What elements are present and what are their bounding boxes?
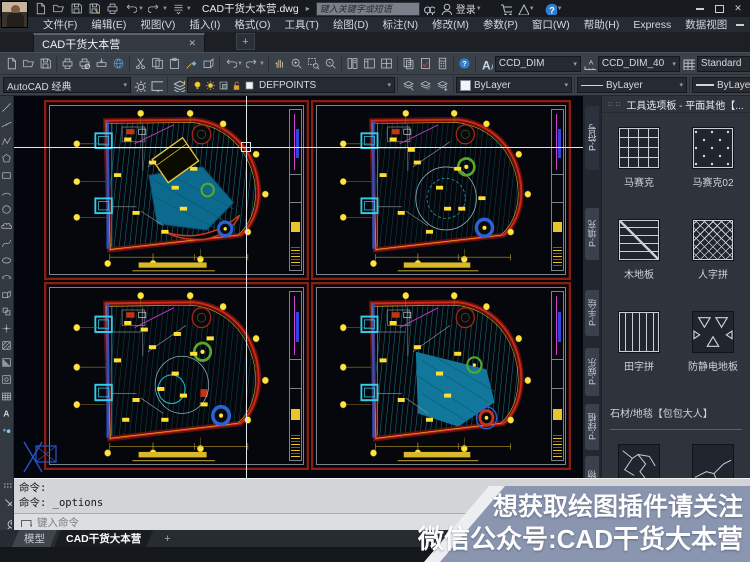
cart-icon[interactable] [497, 0, 514, 18]
toolpalettes-icon[interactable] [378, 55, 395, 73]
viewport-plan-pool[interactable] [50, 106, 287, 274]
menu-dataview[interactable]: 数据视图 [678, 17, 734, 32]
text-style-value: CCD_DIM [499, 58, 545, 69]
toolbar-separator [475, 56, 476, 72]
tool-palette-panel: ⁙⁙ 工具选项板 - 平面其他【... 马赛克马赛克02木地板人字拼田字拼防静电… [601, 96, 750, 478]
menu-express[interactable]: Express [626, 19, 678, 31]
zoom-win-icon[interactable] [305, 55, 322, 73]
menu-modify[interactable]: 修改(M) [425, 17, 476, 32]
palette-section-label: 石材/地毯【包包大人】 [610, 405, 744, 420]
main-area: P-符号 P-填充 P-手绘 P-娱乐 P-绿植 人物 ⁙⁙ 工具选项板 - 平… [0, 96, 750, 478]
layout-tab-bar: 模型 CAD干货大本营 + [0, 530, 750, 547]
add-layout-button[interactable]: + [156, 530, 178, 547]
bulb-icon[interactable] [191, 77, 204, 93]
viewport-plan-detail[interactable] [50, 288, 287, 464]
toolbar-separator [56, 56, 57, 72]
undo-icon[interactable] [122, 0, 139, 18]
help-icon[interactable] [456, 55, 473, 73]
command-line-icon [18, 516, 33, 529]
save-icon[interactable] [37, 55, 54, 73]
insert-block-icon[interactable] [1, 287, 13, 301]
workspace-value: AutoCAD 经典 [7, 78, 71, 93]
command-history[interactable]: 命令: 命令: _options [14, 478, 750, 513]
palette-side-tab-symbols[interactable]: P-符号 [585, 106, 599, 170]
palette-item[interactable]: 马赛克 [602, 127, 676, 189]
locktrans-icon[interactable] [217, 77, 230, 93]
toolbar-separator [341, 56, 342, 72]
line-icon[interactable] [1, 100, 13, 114]
palette-item-label: 马赛克 [624, 174, 654, 189]
polygon-icon[interactable] [1, 151, 13, 165]
save-as-icon[interactable] [86, 0, 103, 18]
tab-layout-active[interactable]: CAD干货大本营 [54, 530, 153, 547]
sheet-title-strip [289, 109, 302, 271]
arc-icon[interactable] [1, 185, 13, 199]
toolbar-separator [219, 56, 220, 72]
linetype-combo[interactable]: ByLayer▾ [577, 77, 687, 93]
menu-parametric[interactable]: 参数(P) [476, 17, 525, 32]
swatch-vlines-icon[interactable] [618, 311, 660, 353]
redo-icon[interactable] [146, 0, 163, 18]
ellipse-arc-icon[interactable] [1, 270, 13, 284]
copy-icon[interactable] [149, 55, 166, 73]
palette-side-tab-people[interactable]: 人物 [585, 456, 599, 478]
xline-icon[interactable] [1, 117, 13, 131]
blockedit-icon[interactable] [200, 55, 217, 73]
crosshair-vertical [246, 96, 247, 478]
title-bar: ▼▼▼ CAD干货大本营.dwg ▸ 键入关键字或短语 登录 ▼ ▼ ▼ ✕ [0, 0, 750, 17]
dim-style-value: CCD_DIM_40 [602, 58, 664, 69]
sign-in-caret-icon[interactable]: ▼ [476, 6, 482, 12]
quickcalc-icon[interactable] [434, 55, 451, 73]
customize-caret-icon[interactable]: ▼ [186, 6, 192, 12]
viewport-plan-circles[interactable] [317, 106, 549, 274]
palette-side-tab-entertainment[interactable]: P-娱乐 [585, 348, 599, 396]
window-controls: ✕ [694, 4, 750, 14]
swatch-dots-icon[interactable] [692, 127, 734, 169]
minimize-button[interactable] [694, 4, 706, 14]
lineweight-combo[interactable]: ByLayer [692, 77, 750, 93]
exchange-caret-icon[interactable]: ▼ [529, 6, 535, 12]
menu-draw[interactable]: 绘图(D) [326, 17, 376, 32]
text-style-combo[interactable]: CCD_DIM▾ [495, 56, 581, 72]
document-window-controls: ✕ [734, 20, 750, 30]
circle-icon[interactable] [1, 202, 13, 216]
menu-insert[interactable]: 插入(I) [182, 17, 227, 32]
command-grip-icon[interactable] [1, 480, 13, 492]
standard-toolbar: ▼▼ CCD_DIM▾ CCD_DIM_40▾ Standard [0, 52, 750, 74]
palette-item-label: 防静电地板 [688, 358, 738, 373]
menu-window[interactable]: 窗口(W) [525, 17, 577, 32]
lineweight-sample [696, 84, 714, 86]
table-style-value: Standard [701, 58, 742, 69]
paste-icon[interactable] [166, 55, 183, 73]
palette-items-grid: 马赛克马赛克02木地板人字拼田字拼防静电地板 [602, 113, 750, 373]
toolbar-separator [268, 56, 269, 72]
menu-format[interactable]: 格式(O) [227, 17, 277, 32]
palette-item[interactable]: 马赛克02 [676, 127, 750, 189]
menu-file[interactable]: 文件(F) [36, 17, 84, 32]
menu-dimension[interactable]: 标注(N) [376, 17, 426, 32]
dim-style-combo[interactable]: CCD_DIM_40▾ [598, 56, 680, 72]
command-close-icon[interactable] [1, 495, 13, 507]
sheet-title-strip [289, 291, 302, 461]
wrench-icon[interactable] [1, 518, 13, 530]
draw-toolbar [0, 96, 14, 478]
app-logo-avatar[interactable] [1, 1, 28, 28]
menu-edit[interactable]: 编辑(E) [84, 17, 133, 32]
palette-item[interactable] [602, 444, 676, 478]
document-tab-close-icon[interactable]: ✕ [188, 38, 196, 49]
table-icon[interactable] [1, 389, 13, 403]
lockopen-icon[interactable] [230, 77, 243, 93]
quick-access-toolbar: ▼▼▼ [32, 0, 193, 18]
color-combo[interactable]: ByLayer▾ [456, 77, 572, 93]
table-style-combo[interactable]: Standard [697, 56, 750, 72]
workspace-settings-icon[interactable] [148, 76, 165, 94]
matchprop-icon[interactable] [183, 55, 200, 73]
redo-caret-icon[interactable]: ▼ [162, 6, 168, 12]
search-exchange-icon[interactable] [420, 0, 437, 18]
swatch-herringbone-icon[interactable] [692, 219, 734, 261]
plot-icon[interactable] [59, 55, 76, 73]
viewport-plan-blob[interactable] [317, 288, 549, 464]
sign-in-button[interactable]: 登录 [456, 1, 476, 16]
redo-caret-icon[interactable]: ▼ [259, 61, 265, 67]
customize-icon[interactable] [170, 0, 187, 18]
point-icon[interactable] [1, 321, 13, 335]
publish-icon[interactable] [93, 55, 110, 73]
palette-item[interactable]: 人字拼 [676, 219, 750, 281]
help-search-placeholder: 键入关键字或短语 [320, 2, 392, 15]
sheet-title-strip [551, 109, 564, 271]
pline-icon[interactable] [1, 134, 13, 148]
crosshair-horizontal [14, 147, 583, 148]
command-input[interactable]: 键入命令 [14, 513, 750, 530]
palette-item-label: 田字拼 [624, 358, 654, 373]
document-tab-label: CAD干货大本营 [42, 36, 120, 52]
designcenter-icon[interactable] [361, 55, 378, 73]
menu-view[interactable]: 视图(V) [133, 17, 182, 32]
status-bar [0, 547, 750, 562]
close-button[interactable]: ✕ [732, 4, 744, 14]
layer-make-icon[interactable] [400, 76, 417, 94]
lineweight-value: ByLayer [717, 80, 750, 91]
hatch-icon[interactable] [1, 338, 13, 352]
layer-prev-icon[interactable] [434, 76, 451, 94]
document-tab[interactable]: CAD干货大本营 ✕ [33, 33, 205, 52]
toolbar-separator [397, 56, 398, 72]
menu-tools[interactable]: 工具(T) [278, 17, 326, 32]
ellipse-icon[interactable] [1, 253, 13, 267]
open-icon[interactable] [50, 0, 67, 18]
toolbar-separator [453, 56, 454, 72]
doc-minimize-button[interactable] [734, 20, 746, 30]
palette-grip-icon[interactable]: ⁙⁙ [607, 100, 622, 109]
layers-toolbar: AutoCAD 经典▾ DEFPOINTS▾ ByLayer▾ ByLayer▾… [0, 74, 750, 96]
palette-side-tab-fill[interactable]: P-填充 [585, 208, 599, 260]
toolbar-separator [129, 56, 130, 72]
cut-icon[interactable] [132, 55, 149, 73]
palette-side-tab-plants[interactable]: P-绿植 [585, 404, 599, 450]
sun-icon[interactable] [204, 77, 217, 93]
revcloud-icon[interactable] [1, 219, 13, 233]
pan-icon[interactable] [271, 55, 288, 73]
undo-caret-icon[interactable]: ▼ [138, 6, 144, 12]
workspace-combo[interactable]: AutoCAD 经典▾ [3, 77, 131, 93]
plot-icon[interactable] [104, 0, 121, 18]
osnap-dots-icon[interactable] [1, 423, 13, 437]
new-icon[interactable] [3, 55, 20, 73]
palette-tab-strip: P-符号 P-填充 P-手绘 P-娱乐 P-绿植 人物 [583, 96, 601, 478]
palette-item-label: 马赛克02 [692, 174, 733, 189]
document-tab-bar: CAD干货大本营 ✕ + [0, 32, 750, 52]
palette-item-label: 人字拼 [698, 266, 728, 281]
help-search-input[interactable]: 键入关键字或短语 [316, 2, 420, 16]
dim-style-icon[interactable] [581, 55, 598, 73]
new-document-tab-button[interactable]: + [236, 33, 255, 50]
palette-item[interactable]: 防静电地板 [676, 311, 750, 373]
zoom-prev-icon[interactable] [322, 55, 339, 73]
palette-partial-items-grid [602, 430, 750, 478]
swatch-white-icon[interactable] [243, 77, 256, 93]
markup-icon[interactable] [417, 55, 434, 73]
command-panel: 命令: 命令: _options 键入命令 [0, 478, 750, 530]
user-icon[interactable] [437, 0, 454, 18]
make-block-icon[interactable] [1, 304, 13, 318]
menu-bar: 文件(F) 编辑(E) 视图(V) 插入(I) 格式(O) 工具(T) 绘图(D… [0, 17, 750, 32]
color-value: ByLayer [474, 80, 511, 91]
palette-item[interactable]: 田字拼 [602, 311, 676, 373]
ucs-detail-glyph [22, 434, 68, 474]
palette-item[interactable] [676, 444, 750, 478]
application-window: ▼▼▼ CAD干货大本营.dwg ▸ 键入关键字或短语 登录 ▼ ▼ ▼ ✕ 文… [0, 0, 750, 562]
help-caret-icon[interactable]: ▼ [557, 6, 563, 12]
zoom-rt-icon[interactable] [288, 55, 305, 73]
sheet-title-strip [551, 291, 564, 461]
command-input-placeholder: 键入命令 [37, 515, 79, 530]
globe-icon[interactable] [110, 55, 127, 73]
gear-icon[interactable] [131, 76, 148, 94]
swatch-crack1-icon[interactable] [618, 444, 660, 478]
gradient-icon[interactable] [1, 355, 13, 369]
linetype-sample [581, 85, 603, 86]
crosshair-pickbox [241, 142, 251, 152]
spline-icon[interactable] [1, 236, 13, 250]
table-style-icon[interactable] [680, 55, 697, 73]
mtext-icon[interactable] [1, 406, 13, 420]
palette-item-label: 木地板 [624, 266, 654, 281]
swatch-planks-icon[interactable] [618, 219, 660, 261]
tool-palette-header[interactable]: ⁙⁙ 工具选项板 - 平面其他【... [602, 96, 750, 113]
undo-caret-icon[interactable]: ▼ [237, 61, 243, 67]
text-style-icon[interactable] [478, 55, 495, 73]
swatch-crack2-icon[interactable] [692, 444, 734, 478]
linetype-value: ByLayer [606, 80, 643, 91]
window-title: CAD干货大本营.dwg [202, 1, 299, 16]
rectangle-icon[interactable] [1, 168, 13, 182]
layer-combo[interactable]: DEFPOINTS▾ [187, 77, 395, 93]
sheetset-icon[interactable] [400, 55, 417, 73]
layer-properties-icon[interactable] [170, 76, 187, 94]
viewport-sheet-top-right[interactable] [311, 100, 571, 280]
viewport-sheet-bottom-left[interactable] [44, 282, 309, 470]
tool-palette-title: 工具选项板 - 平面其他【... [626, 97, 743, 112]
open-icon[interactable] [20, 55, 37, 73]
layer-current-value: DEFPOINTS [259, 80, 316, 91]
menu-help[interactable]: 帮助(H) [577, 17, 627, 32]
swatch-triangles-icon[interactable] [692, 311, 734, 353]
new-icon[interactable] [32, 0, 49, 18]
swatch-grid-icon[interactable] [618, 127, 660, 169]
viewport-sheet-bottom-right[interactable] [311, 282, 571, 470]
palette-item[interactable]: 木地板 [602, 219, 676, 281]
search-flyout-icon[interactable]: ▸ [306, 4, 310, 13]
region-icon[interactable] [1, 372, 13, 386]
color-swatch [460, 80, 471, 91]
preview-icon[interactable] [76, 55, 93, 73]
tab-model[interactable]: 模型 [12, 530, 57, 547]
palette-side-tab-sketch[interactable]: P-手绘 [585, 290, 599, 336]
command-history-line: 命令: [19, 481, 745, 496]
restore-button[interactable] [713, 4, 725, 14]
viewport-sheet-top-left[interactable] [44, 100, 309, 280]
command-panel-controls [0, 478, 14, 530]
layer-match-icon[interactable] [417, 76, 434, 94]
props-icon[interactable] [344, 55, 361, 73]
command-history-line: 命令: _options [19, 496, 745, 511]
drawing-canvas[interactable] [14, 96, 583, 478]
save-icon[interactable] [68, 0, 85, 18]
